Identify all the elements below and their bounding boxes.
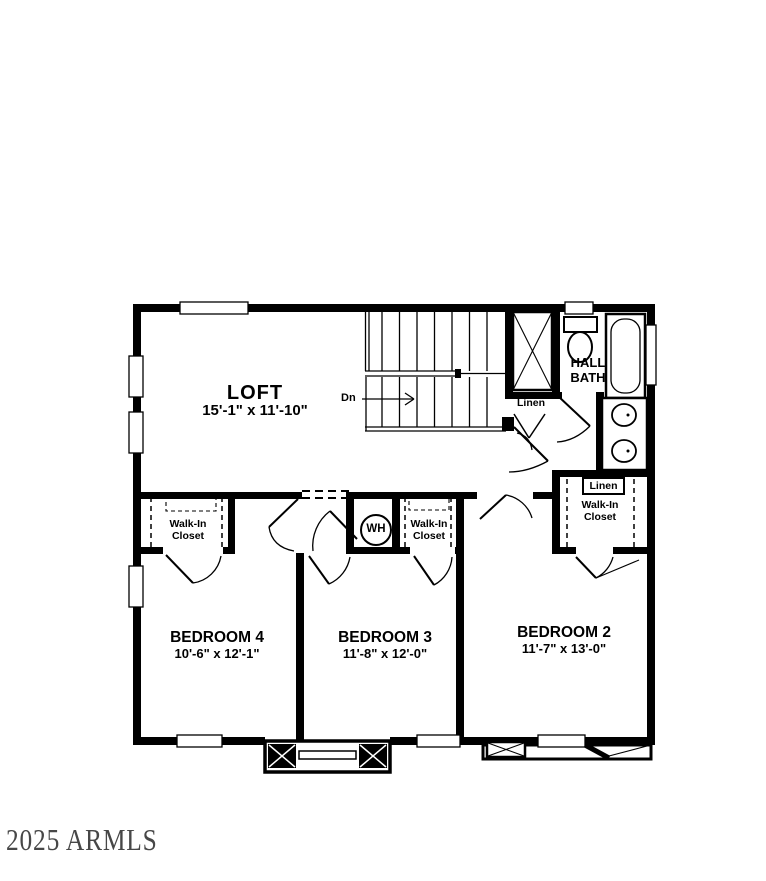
water-heater-label: WH bbox=[362, 523, 390, 536]
linen-bedroom2-label: Linen bbox=[582, 477, 625, 495]
bedroom3-label: BEDROOM 3 bbox=[315, 629, 455, 646]
linen-hall-label: Linen bbox=[509, 398, 553, 410]
hall-bath-label: HALL BATH bbox=[561, 356, 615, 385]
doors bbox=[166, 396, 639, 585]
walkin-closet-bedroom3-label: Walk-In Closet bbox=[397, 519, 461, 543]
bedroom2-dimensions: 11'-7" x 13'-0" bbox=[494, 642, 634, 657]
bedroom2-label: BEDROOM 2 bbox=[494, 624, 634, 641]
floor-plan-page: LOFT 15'-1" x 11'-10" BEDROOM 4 10'-6" x… bbox=[0, 0, 766, 881]
armls-watermark: 2025 ARMLS bbox=[6, 822, 158, 858]
floor-plan-drawing bbox=[0, 0, 766, 881]
walkin-closet-bedroom4-label: Walk-In Closet bbox=[156, 519, 220, 543]
stairs-down-label: Dn bbox=[341, 392, 365, 404]
chase-x-box bbox=[513, 312, 552, 390]
bedroom3-dimensions: 11'-8" x 12'-0" bbox=[315, 647, 455, 662]
staircase bbox=[365, 312, 514, 431]
walkin-closet-bedroom2-label: Walk-In Closet bbox=[568, 500, 632, 524]
double-vanity bbox=[602, 398, 647, 470]
bedroom4-label: BEDROOM 4 bbox=[147, 629, 287, 646]
center-box-bay bbox=[265, 741, 390, 772]
loft-dimensions: 15'-1" x 11'-10" bbox=[180, 403, 330, 420]
stairs-down-arrow bbox=[362, 393, 414, 405]
bedroom4-dimensions: 10'-6" x 12'-1" bbox=[147, 647, 287, 662]
